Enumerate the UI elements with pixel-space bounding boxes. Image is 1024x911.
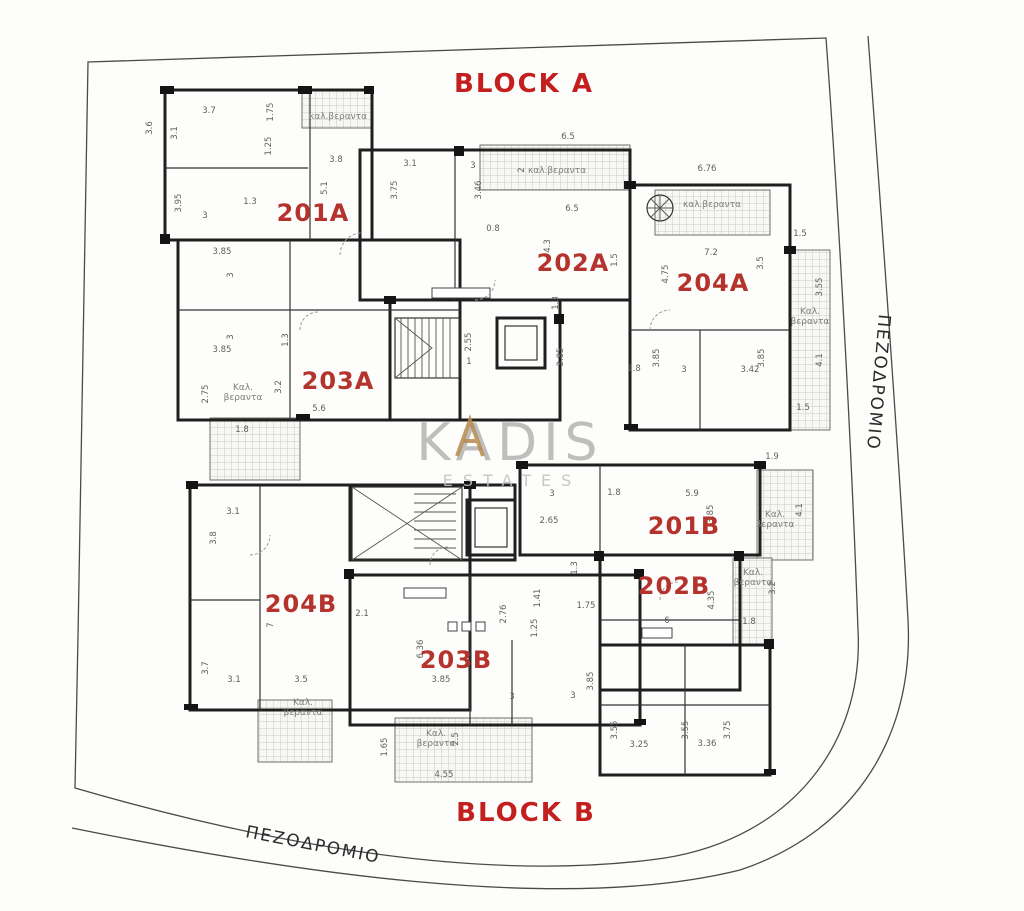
dimension-label: 2.75 bbox=[201, 385, 211, 404]
dimension-label: 3.25 bbox=[630, 740, 649, 750]
dimension-label: 3.42 bbox=[741, 365, 760, 375]
dimension-label: 3 bbox=[509, 692, 514, 702]
dimension-label: 1.3 bbox=[570, 561, 580, 575]
veranda-label: καλ.βεραντα bbox=[309, 112, 367, 122]
dimension-label: 1.8 bbox=[607, 488, 621, 498]
dimension-label: 3.36 bbox=[698, 739, 717, 749]
dimension-label: 3 bbox=[470, 161, 475, 171]
dimension-label: 3.1 bbox=[170, 126, 180, 140]
apartment-label-203a: 203A bbox=[302, 367, 375, 395]
veranda-label: καλ.βεραντα bbox=[683, 200, 741, 210]
dimension-label: 3.5 bbox=[756, 256, 766, 270]
dimension-label: 1.3 bbox=[551, 296, 561, 310]
dimension-label: 1.25 bbox=[530, 619, 540, 638]
dimension-label: 1.75 bbox=[577, 601, 596, 611]
dimension-label: 3 bbox=[549, 489, 554, 499]
block-a-walls bbox=[165, 90, 790, 430]
elevator-block-b bbox=[467, 500, 515, 555]
dimension-label: 3.7 bbox=[201, 661, 211, 675]
dimension-label: 5.6 bbox=[312, 404, 326, 414]
dimension-label: 2.76 bbox=[499, 605, 509, 624]
dimension-label: 6 bbox=[664, 616, 669, 626]
stair-core-block-b bbox=[352, 487, 462, 560]
dimension-label: 3.6 bbox=[145, 121, 155, 135]
dimension-label: 3.8 bbox=[329, 155, 343, 165]
spiral-stair-icon bbox=[647, 195, 673, 221]
dimension-label: 2.65 bbox=[540, 516, 559, 526]
dimension-label: 2.1 bbox=[355, 609, 369, 619]
watermark: KADIS ESTATES bbox=[416, 413, 603, 490]
dimension-label: 6.5 bbox=[565, 204, 579, 214]
dimension-label: 1.8 bbox=[235, 425, 249, 435]
dimension-label: 3.55 bbox=[681, 721, 691, 740]
veranda-label: Καλ.βεραντα bbox=[224, 383, 263, 403]
dimension-label: 3.75 bbox=[723, 721, 733, 740]
dimension-label: 1.8 bbox=[742, 617, 756, 627]
dimension-label: 3.55 bbox=[610, 721, 620, 740]
dimension-label: 3.1 bbox=[403, 159, 417, 169]
dimension-label: 4.75 bbox=[661, 265, 671, 284]
floor-plan-page: KADIS ESTATES BLOCK A BLOCK B 3.63.73.11… bbox=[0, 0, 1024, 911]
dimension-label: 1.8 bbox=[627, 364, 641, 374]
dimension-label: 1.3 bbox=[243, 197, 257, 207]
stair-core-block-a bbox=[395, 318, 460, 378]
dimension-label: 3.7 bbox=[202, 106, 216, 116]
apartment-label-201b: 201B bbox=[648, 512, 720, 540]
dimension-label: 3.1 bbox=[226, 507, 240, 517]
dimension-label: 3.95 bbox=[174, 194, 184, 213]
dimension-label: 1.5 bbox=[610, 253, 620, 267]
dimension-label: 3.85 bbox=[586, 672, 596, 691]
dimension-label: 3.85 bbox=[432, 675, 451, 685]
dimension-label: 3 bbox=[226, 334, 236, 339]
dimension-label: 3 bbox=[681, 365, 686, 375]
watermark-brand: KADIS bbox=[416, 413, 603, 473]
dimension-label: 6.76 bbox=[698, 164, 717, 174]
apartment-label-202b: 202B bbox=[638, 572, 710, 600]
dimension-label: 1.9 bbox=[765, 452, 779, 462]
street-label: ΠΕΖΟΔΡΟΜΙΟ bbox=[862, 313, 894, 451]
dimension-label: 3.8 bbox=[209, 531, 219, 545]
dimension-label: 4.1 bbox=[795, 503, 805, 517]
dimension-label: 3.1 bbox=[227, 675, 241, 685]
dimension-label: 2.55 bbox=[464, 333, 474, 352]
apartment-label-202a: 202A bbox=[537, 249, 610, 277]
apartment-label-203b: 203B bbox=[420, 646, 492, 674]
dimension-label: 4.55 bbox=[435, 770, 454, 780]
dimension-label: 3.85 bbox=[556, 348, 566, 367]
dimension-label: 3 bbox=[226, 272, 236, 277]
elevator-block-a bbox=[497, 318, 545, 368]
dimension-label: 1.25 bbox=[264, 137, 274, 156]
dimension-label: 3 bbox=[202, 211, 207, 221]
dimension-label: 3 bbox=[570, 691, 575, 701]
watermark-tagline: ESTATES bbox=[443, 471, 582, 490]
apartment-label-204b: 204B bbox=[265, 590, 337, 618]
dimension-label: 3.75 bbox=[390, 181, 400, 200]
dimension-label: 0.8 bbox=[486, 224, 500, 234]
dimension-label: 1.75 bbox=[266, 103, 276, 122]
veranda-label: καλ.βεραντα bbox=[528, 166, 586, 176]
dimension-label: 4.1 bbox=[815, 353, 825, 367]
dimension-label: 1.3 bbox=[281, 333, 291, 347]
block-b-title: BLOCK B bbox=[456, 798, 596, 828]
street-label: ΠΕΖΟΔΡΟΜΙΟ bbox=[244, 822, 382, 868]
dimension-label: 5.1 bbox=[320, 181, 330, 195]
dimension-label: 5.9 bbox=[685, 489, 699, 499]
dimension-label: 2 bbox=[517, 167, 527, 172]
dimension-label: 1 bbox=[466, 357, 471, 367]
dimension-label: 1.5 bbox=[796, 403, 810, 413]
dimension-label: 1.41 bbox=[533, 589, 543, 608]
dimension-label: 3.55 bbox=[815, 278, 825, 297]
dimension-label: 3.46 bbox=[474, 181, 484, 200]
dimension-label: 3.5 bbox=[294, 675, 308, 685]
dimension-label: 3.85 bbox=[652, 349, 662, 368]
dimension-label: 3.85 bbox=[213, 345, 232, 355]
dimension-label: 1.5 bbox=[793, 229, 807, 239]
dimension-label: 7 bbox=[266, 622, 276, 627]
dimension-label: 3.2 bbox=[274, 380, 284, 394]
dimension-label: 3.85 bbox=[213, 247, 232, 257]
dimension-label: 1.65 bbox=[380, 738, 390, 757]
block-a-title: BLOCK A bbox=[454, 69, 594, 99]
apartment-label-201a: 201A bbox=[277, 199, 350, 227]
apartment-label-204a: 204A bbox=[677, 269, 750, 297]
dimension-label: 6.5 bbox=[561, 132, 575, 142]
dimension-label: 7.2 bbox=[704, 248, 718, 258]
floor-plan-drawing: KADIS ESTATES BLOCK A BLOCK B 3.63.73.11… bbox=[0, 0, 1024, 911]
